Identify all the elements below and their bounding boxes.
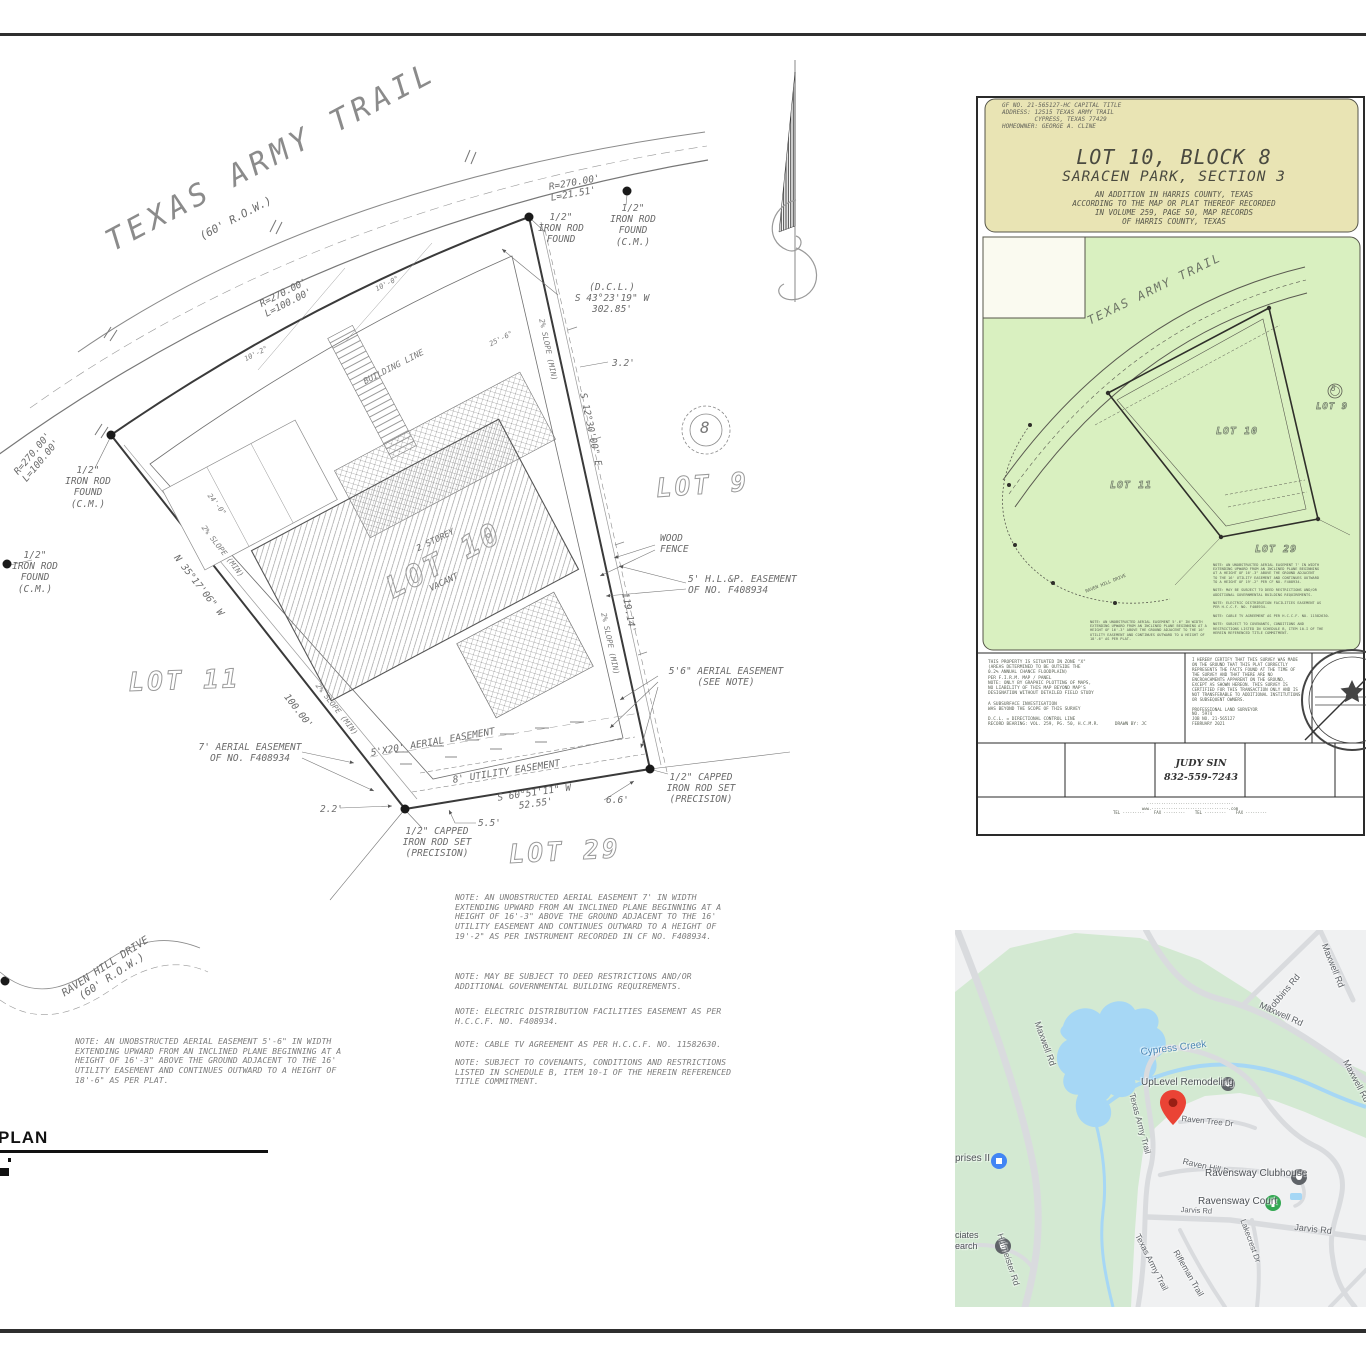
sheet-title: PLAN [0,1128,48,1148]
sheet-title-rule [0,1150,268,1153]
bottom-border-rule [0,1329,1366,1333]
survey-sheet: TEXAS ARMY TRAIL(60' R.O.W.)R=270.00' L=… [0,0,1366,1366]
recorded-survey-document [975,95,1366,840]
sheet-logo-dot [8,1158,11,1162]
map-pool [1290,1193,1302,1200]
location-map [955,930,1366,1307]
sheet-logo-mark [0,1168,9,1176]
north-arrow-icon [772,60,816,302]
site-plan-drawing [0,0,960,1120]
